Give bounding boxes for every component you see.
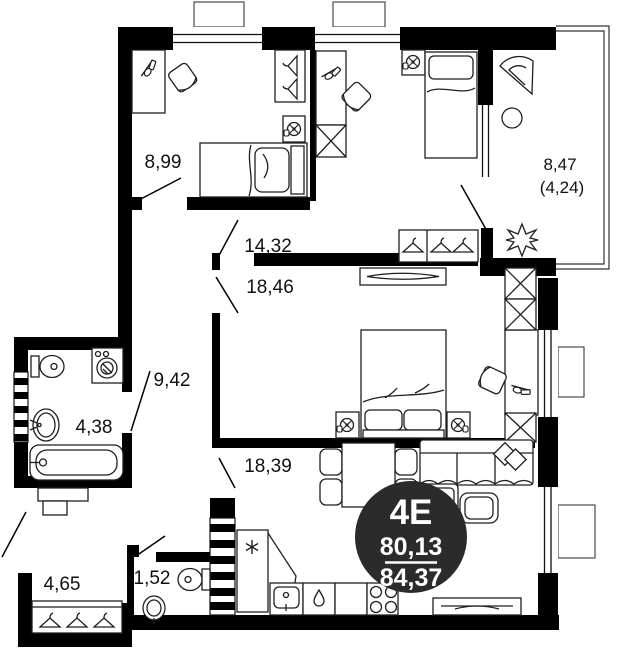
tv-stand — [433, 598, 521, 615]
door-living — [219, 458, 235, 488]
desk-chair — [167, 62, 199, 94]
desk — [316, 51, 346, 125]
single-bed — [425, 52, 477, 158]
door-bedroom-middle — [216, 220, 238, 261]
unit-badge: 4E 80,13 84,37 — [355, 481, 467, 593]
cabinet — [335, 583, 367, 615]
sink — [30, 409, 59, 441]
window-sill — [194, 2, 244, 27]
duct-shaft-left — [14, 372, 28, 442]
bedroom-small-furniture — [132, 50, 307, 197]
duct-shaft-kitchen — [210, 518, 235, 615]
toilet — [178, 569, 210, 591]
bathtub — [30, 445, 123, 480]
dining-chair — [395, 449, 417, 475]
label-entry-area: 4,65 — [44, 574, 81, 595]
cabinet — [316, 125, 346, 157]
window-bedroom-small — [173, 27, 262, 50]
window-living — [538, 487, 558, 573]
door-bedroom-master — [216, 277, 238, 313]
dining-chair — [320, 479, 342, 505]
badge-unit-label: 4E — [390, 493, 433, 532]
tv — [360, 268, 446, 285]
toilet — [31, 356, 64, 378]
dining-chair — [320, 449, 342, 475]
balcony-glazing — [556, 26, 609, 269]
single-bed — [200, 143, 307, 197]
badge-total-area: 84,37 — [380, 564, 443, 592]
wardrobe — [399, 230, 478, 262]
label-bedroom-middle-area: 14,32 — [244, 236, 292, 257]
wardrobe — [275, 50, 305, 102]
double-bed — [361, 330, 446, 438]
door-balcony — [461, 185, 487, 231]
window-master — [538, 330, 558, 417]
dishwasher — [303, 583, 335, 615]
desk — [505, 330, 538, 415]
door-bedroom-small — [137, 178, 181, 201]
desk — [132, 50, 165, 113]
label-bedroom-small-area: 8,99 — [145, 152, 182, 173]
armchair — [500, 57, 533, 94]
ac-platform — [558, 347, 584, 397]
window-bedroom-middle — [315, 27, 400, 50]
balcony-furniture — [500, 57, 538, 256]
entry-wardrobe — [32, 601, 122, 633]
window-balcony — [478, 105, 493, 177]
door-entrance — [2, 512, 26, 557]
floor-plan: 8,99 14,32 18,46 9,42 4,38 18,39 4,65 1,… — [0, 0, 627, 651]
label-balcony-coeff: (4,24) — [540, 178, 584, 197]
round-table — [502, 108, 522, 128]
label-bedroom-master-area: 18,46 — [246, 277, 294, 298]
coffee-table — [460, 493, 498, 523]
plant-icon — [506, 224, 538, 256]
label-wc-area: 1,52 — [134, 568, 171, 589]
door-bathroom — [131, 371, 150, 431]
label-hallway-area: 9,42 — [154, 370, 191, 391]
water-heater — [38, 488, 88, 515]
window-sill — [333, 2, 385, 27]
floor-plan-canvas: 8,99 14,32 18,46 9,42 4,38 18,39 4,65 1,… — [0, 0, 627, 651]
ac-platform — [558, 505, 595, 558]
label-bathroom-area: 4,38 — [76, 417, 113, 438]
washing-machine — [92, 348, 123, 383]
label-balcony-area: 8,47 — [543, 155, 576, 174]
badge-living-area: 80,13 — [380, 533, 443, 561]
desk-chair — [477, 365, 508, 395]
bedroom-middle-furniture — [316, 50, 477, 158]
label-living-kitchen-area: 18,39 — [244, 456, 292, 477]
